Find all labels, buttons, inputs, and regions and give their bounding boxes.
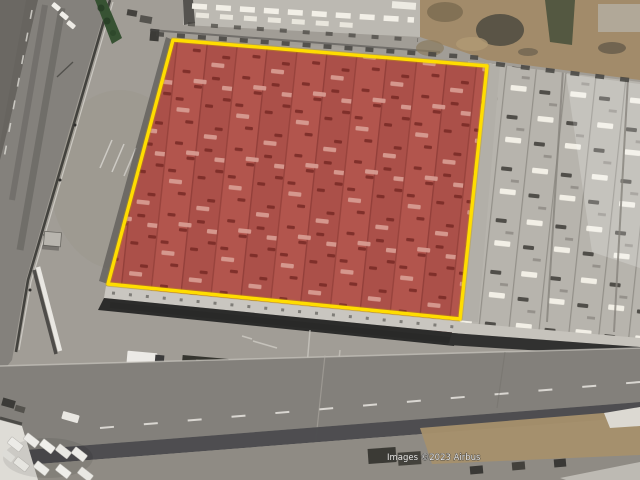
aerial-imagery: Images ©2023 Airbus [0,0,640,480]
map-attribution: Images ©2023 Airbus [387,453,481,463]
small-shed [43,231,61,246]
satellite-map-view: Images ©2023 Airbus [0,0,640,480]
